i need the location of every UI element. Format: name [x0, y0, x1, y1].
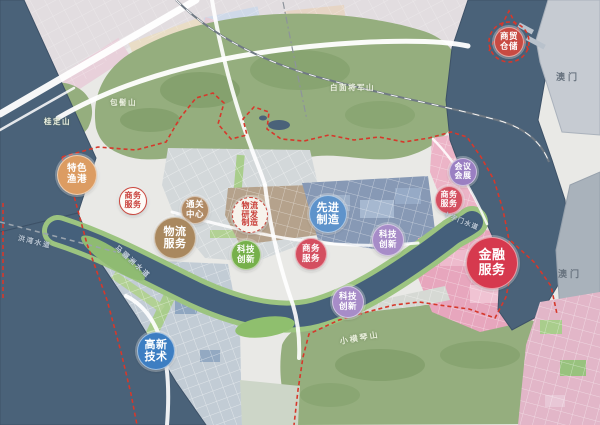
zone-badge-tech-innovation-north: 科技创新	[372, 224, 404, 256]
mountain-label-guiding-shan: 桂定山	[44, 116, 71, 127]
zone-badge-advanced-manufacturing: 先进制造	[309, 195, 347, 233]
zone-badge-tech-innovation-green: 科技创新	[231, 240, 261, 270]
mountain-label-baoji-shan: 包髻山	[110, 97, 137, 108]
zone-badge-trade-warehousing: 商贸仓储	[494, 27, 524, 57]
zone-badge-tech-innovation-south: 科技创新	[332, 286, 364, 318]
mountain-label-baimian-jiangjun-shan: 白面将军山	[330, 82, 375, 93]
water-label-maliuzhou-waterway: 马骝洲水道	[113, 243, 153, 281]
zone-badge-financial-services: 金融服务	[466, 237, 518, 289]
zone-badge-business-services-center: 商务服务	[295, 238, 327, 270]
water-label-shizimen-waterway: 十字门水道	[442, 208, 481, 231]
zone-badge-logistics-rd-manufacturing: 物流研发制造	[232, 197, 268, 233]
zone-badge-business-services-west: 商务服务	[119, 187, 147, 215]
zone-badge-hightech: 高新技术	[137, 332, 175, 370]
zone-badge-logistics-services: 物流服务	[154, 217, 196, 259]
place-label-macau-north: 澳门	[556, 70, 580, 83]
planning-map: 商贸仓储特色渔港商务服务通关中心物流研发制造物流服务先进制造科技创新商务服务科技…	[0, 0, 600, 425]
zone-badge-conference-exhibition: 会议会展	[449, 158, 477, 186]
mountain-label-xiaohengqin-shan: 小横琴山	[339, 329, 380, 347]
water-label-hongwan-waterway: 洪湾水道	[17, 233, 52, 251]
place-label-macau-east: 澳门	[558, 267, 582, 280]
zone-badge-special-fishing-port: 特色渔港	[57, 155, 97, 195]
annotation-overlay: 商贸仓储特色渔港商务服务通关中心物流研发制造物流服务先进制造科技创新商务服务科技…	[0, 0, 600, 425]
